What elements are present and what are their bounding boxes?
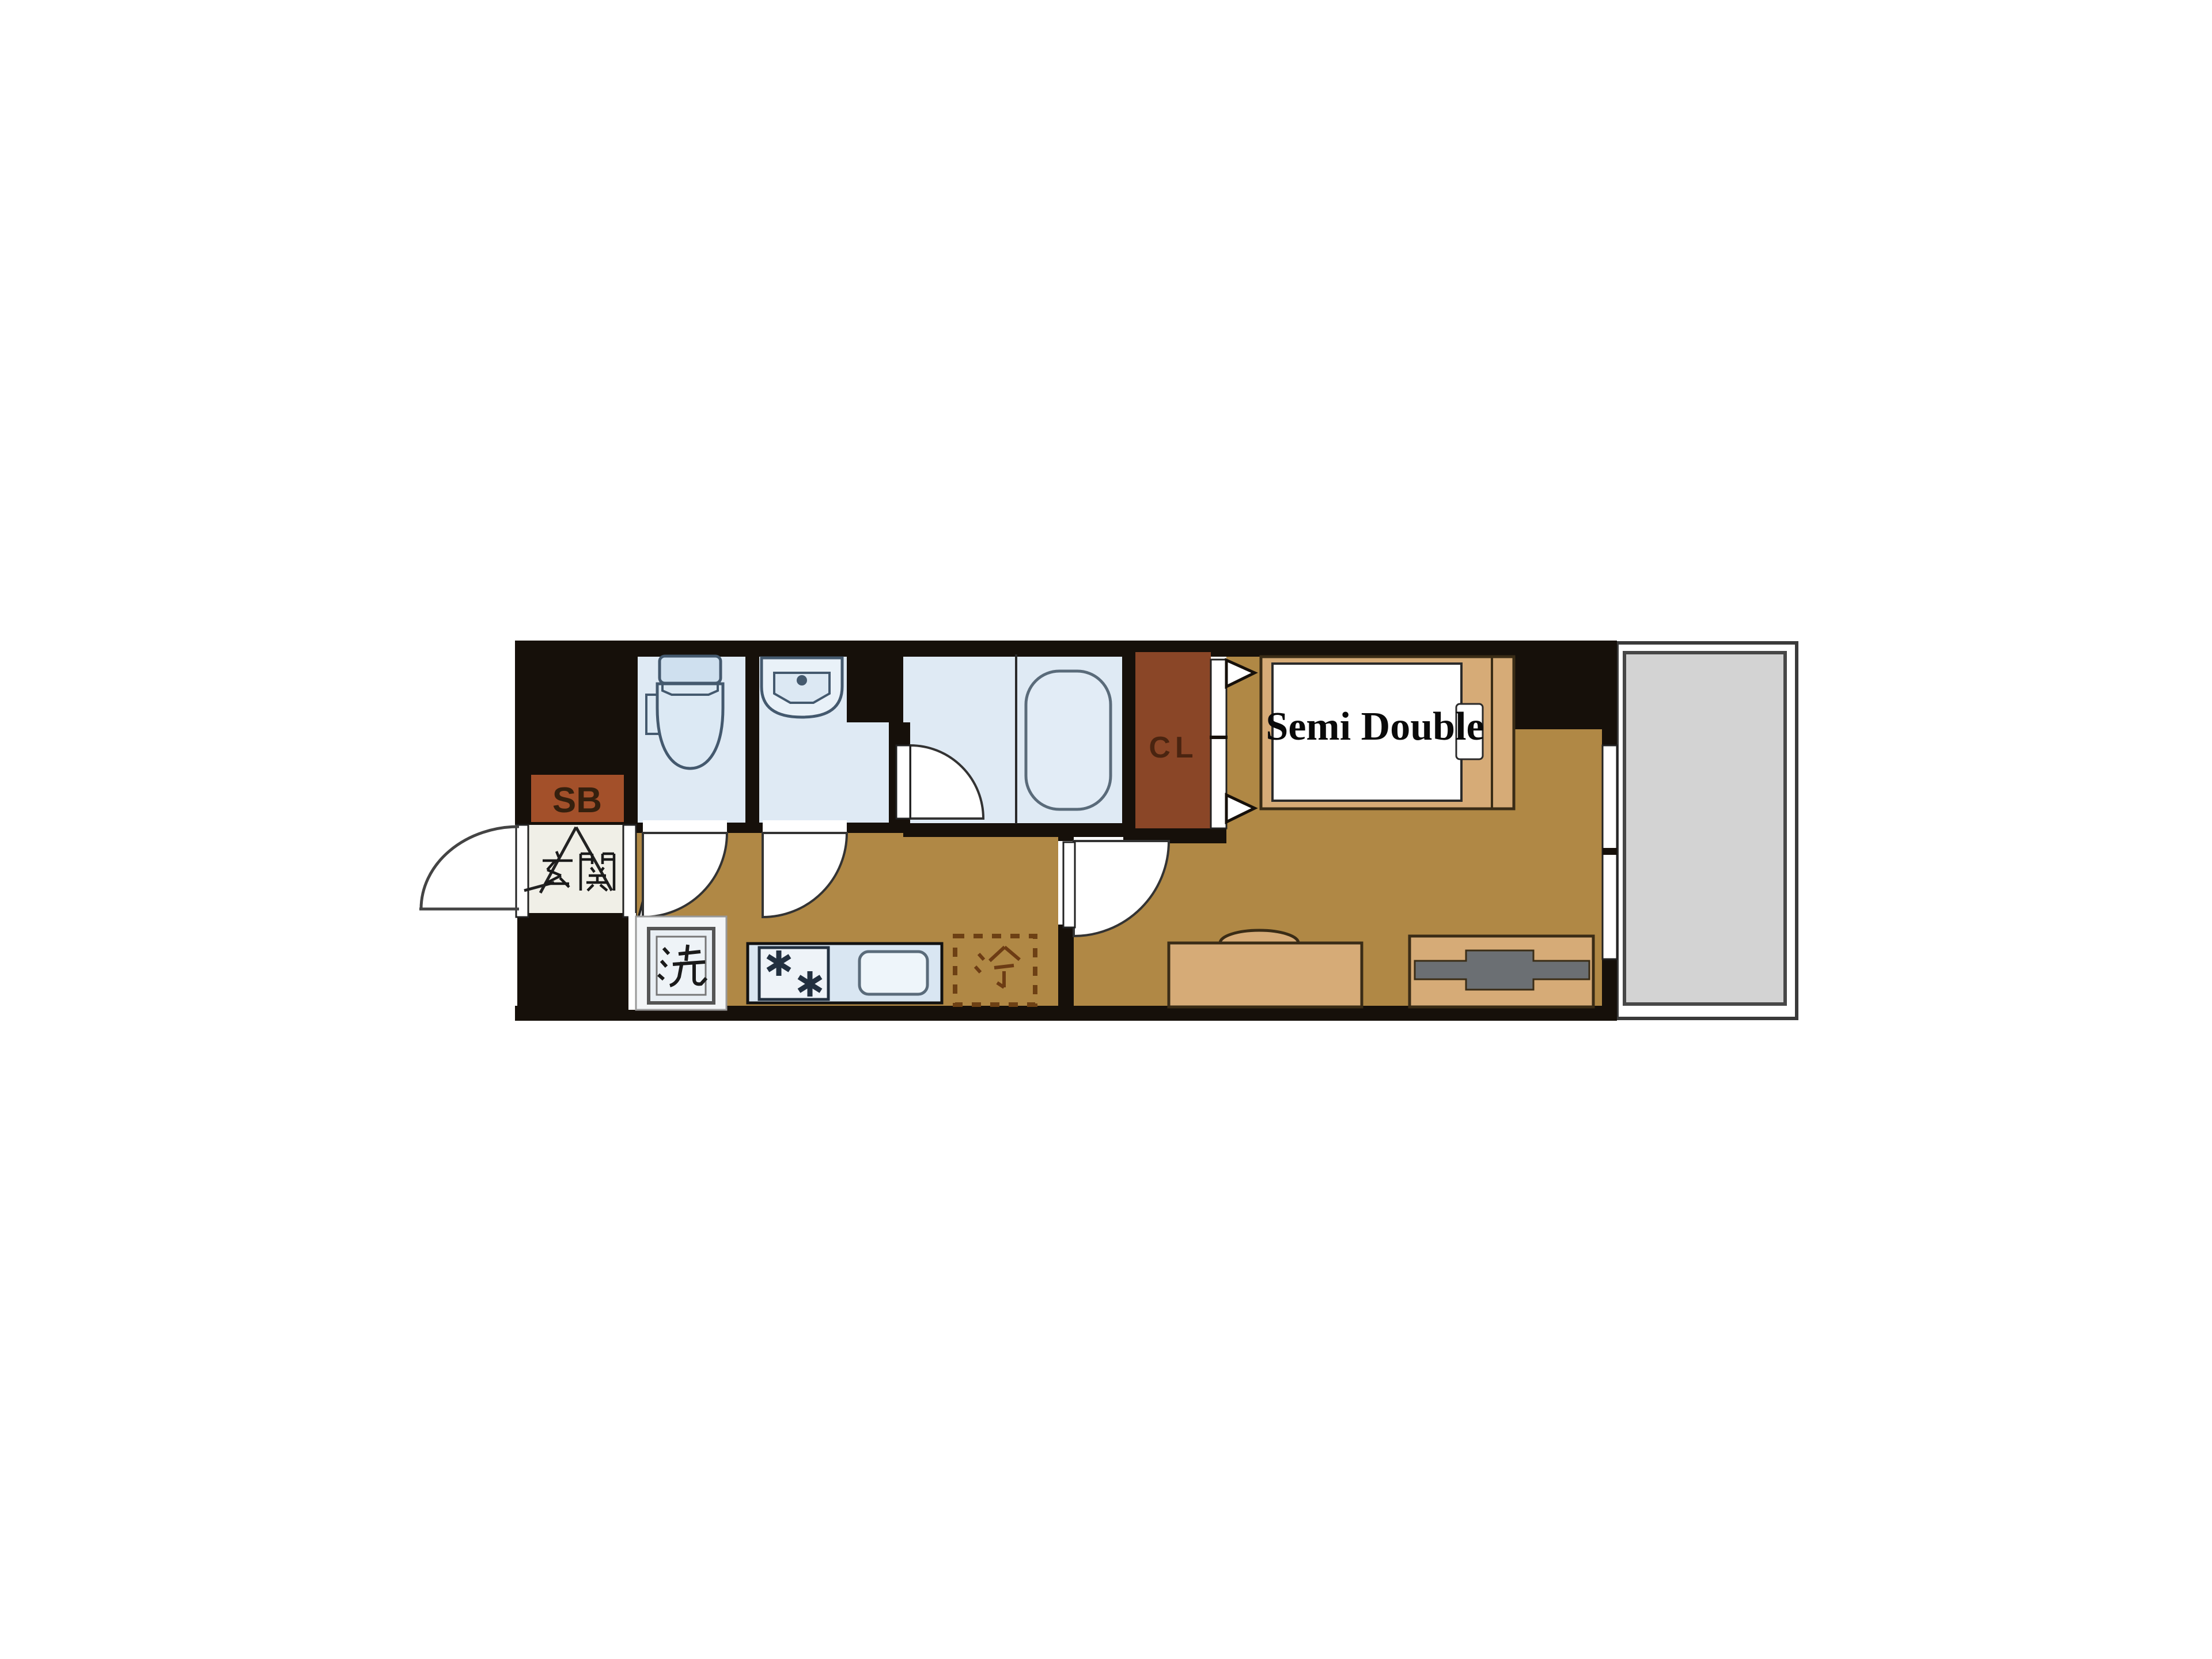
svg-text:CL: CL [1149, 731, 1198, 764]
svg-text:SB: SB [552, 781, 602, 820]
svg-text:Semi Double: Semi Double [1266, 704, 1484, 749]
